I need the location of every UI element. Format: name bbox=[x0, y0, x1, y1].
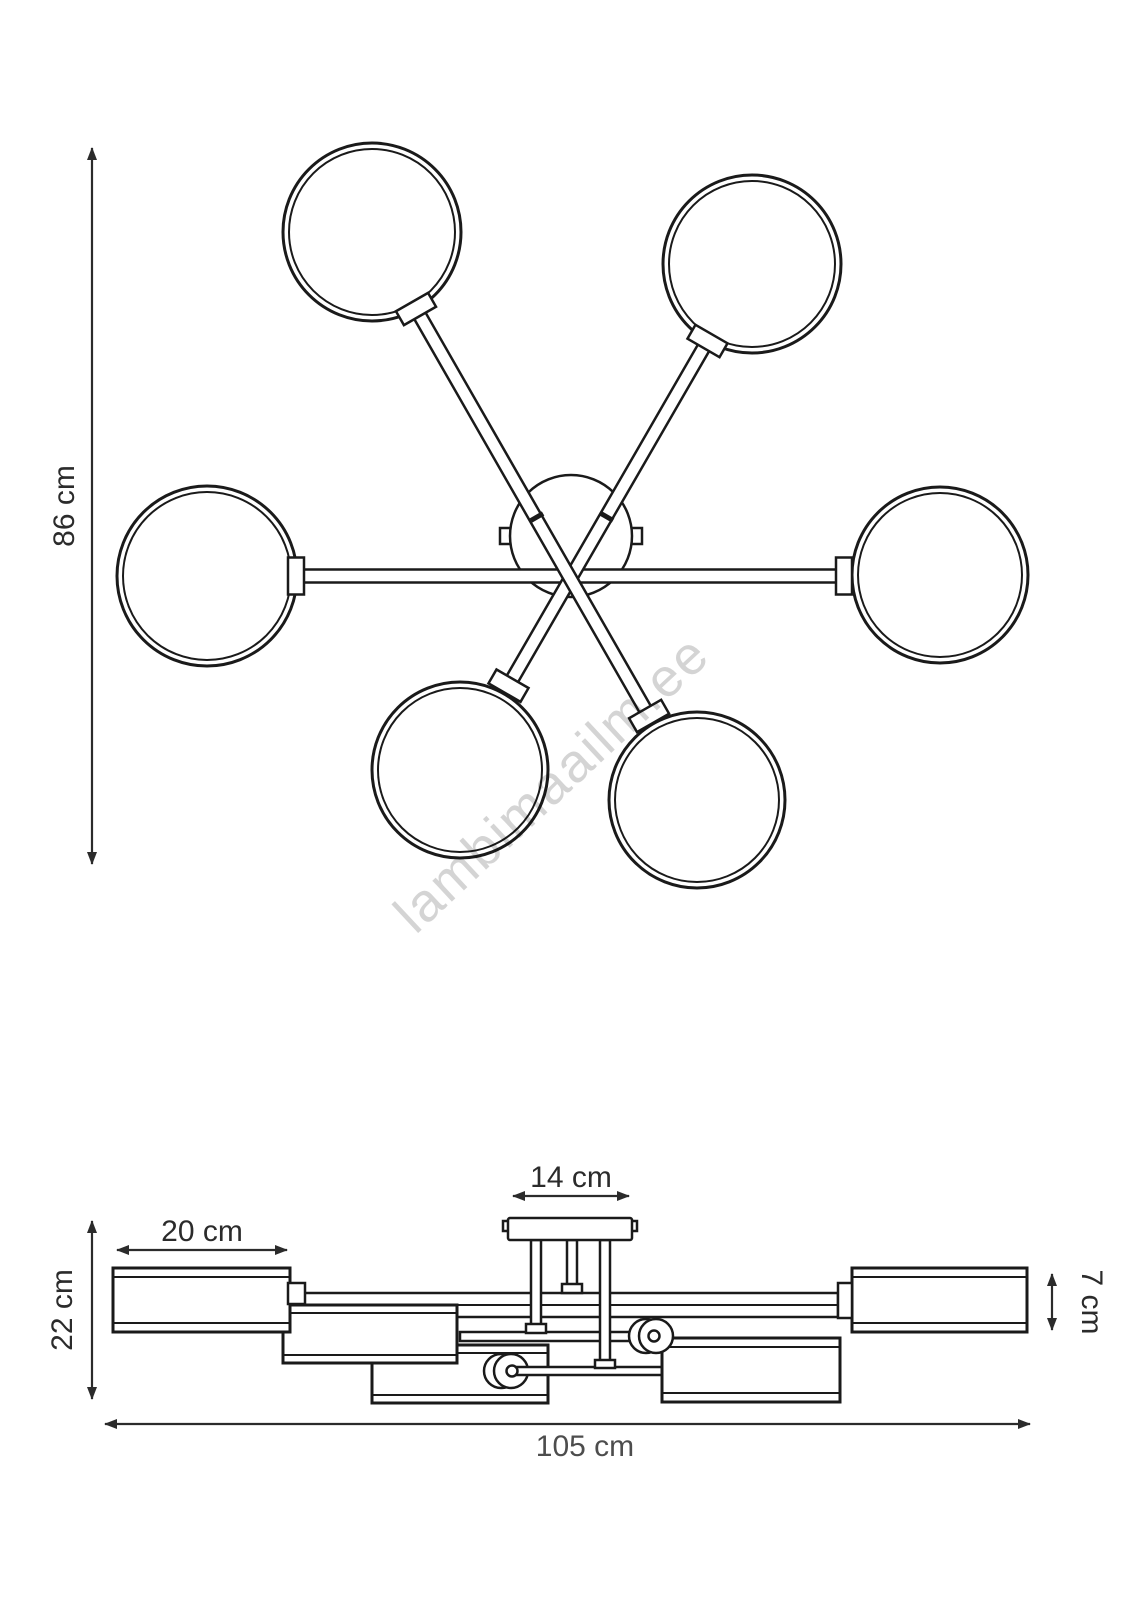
dimension-total-width: 105 cm bbox=[105, 1424, 1030, 1463]
shade-circle-top-left bbox=[283, 143, 461, 321]
shade-circle-left bbox=[117, 486, 297, 666]
ceiling-canopy bbox=[503, 1218, 637, 1240]
dimension-label-7cm: 7 cm bbox=[1075, 1269, 1108, 1334]
dimension-label-20cm: 20 cm bbox=[161, 1215, 243, 1248]
shade-circle-top-right bbox=[663, 175, 841, 353]
shade-side-middle-left bbox=[283, 1305, 457, 1363]
dimension-drawing-canvas: 86 cm 14 cm 20 cm 22 cm 7 cm 105 cm lamb… bbox=[0, 0, 1143, 1600]
canopy-rod-middle bbox=[562, 1240, 582, 1293]
dimension-label-22cm: 22 cm bbox=[46, 1269, 79, 1351]
dimension-shade-height: 7 cm bbox=[1052, 1269, 1108, 1334]
rail-connector-right bbox=[838, 1283, 852, 1318]
shade-side-left bbox=[113, 1268, 305, 1332]
canopy-rod-left bbox=[526, 1240, 546, 1333]
lower-rod bbox=[512, 1367, 662, 1375]
lamp-holder-left bbox=[484, 1354, 662, 1388]
arm-connector bbox=[288, 558, 304, 595]
dimension-plan-height: 86 cm bbox=[48, 148, 92, 864]
shade-circle-right bbox=[852, 487, 1028, 663]
dimension-shade-length: 20 cm bbox=[117, 1215, 287, 1250]
dimension-label-86cm: 86 cm bbox=[48, 465, 81, 547]
dimension-fixture-height: 22 cm bbox=[46, 1221, 92, 1399]
dimension-label-105cm: 105 cm bbox=[536, 1430, 634, 1463]
shade-side-right bbox=[838, 1268, 1027, 1332]
dimension-canopy-width: 14 cm bbox=[513, 1161, 629, 1196]
side-view bbox=[113, 1218, 1027, 1403]
shade-side-bottom-centre bbox=[662, 1338, 840, 1402]
arm-connector bbox=[836, 558, 852, 595]
technical-drawing-page: 86 cm 14 cm 20 cm 22 cm 7 cm 105 cm lamb… bbox=[0, 0, 1143, 1600]
dimension-label-14cm: 14 cm bbox=[530, 1161, 612, 1194]
mid-rod bbox=[460, 1332, 650, 1341]
rail-connector-left bbox=[288, 1283, 305, 1304]
